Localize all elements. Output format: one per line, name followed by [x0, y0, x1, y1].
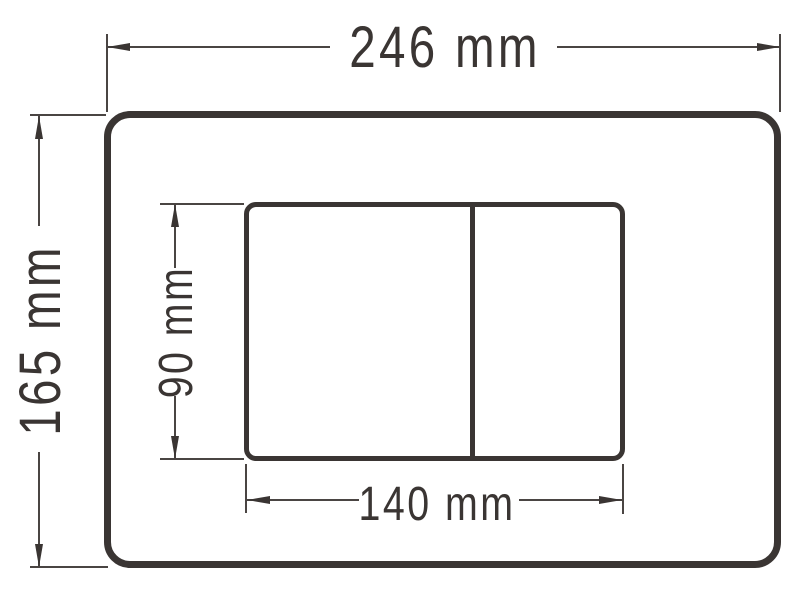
arrowhead-down-icon	[35, 544, 43, 567]
overall-width-label: 246 mm	[281, 14, 609, 80]
extension-line-buttons-right	[622, 464, 624, 514]
extension-line-buttons-left	[245, 464, 247, 513]
arrowhead-right-icon	[757, 43, 780, 51]
button-height-label: 90 mm	[146, 168, 206, 496]
button-width-label: 140 mm	[273, 474, 601, 534]
button-panel-outline	[244, 202, 625, 461]
arrowhead-up-icon	[35, 116, 43, 139]
dimension-drawing: 246 mm 165 mm 90 mm 140 mm	[0, 0, 800, 599]
button-divider-line	[470, 204, 475, 459]
arrowhead-right-icon	[599, 496, 622, 504]
arrowhead-left-icon	[247, 496, 270, 504]
overall-height-label: 165 mm	[7, 176, 73, 504]
arrowhead-left-icon	[107, 43, 130, 51]
